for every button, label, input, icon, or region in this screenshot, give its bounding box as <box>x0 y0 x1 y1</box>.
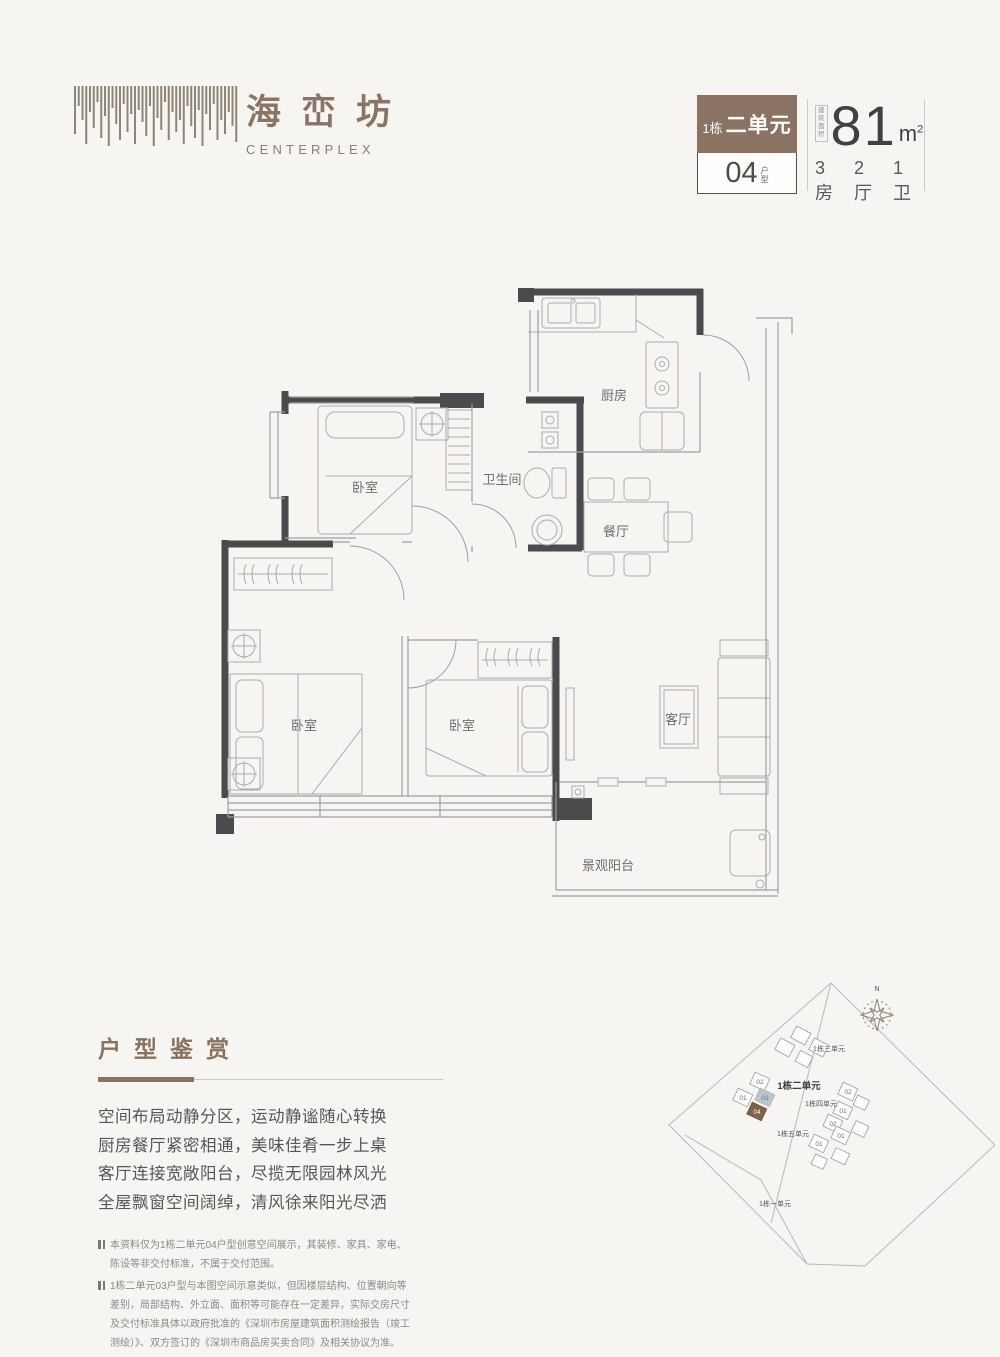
feature-line: 全屋飘窗空间阔绰，清风徐来阳光尽洒 <box>98 1189 448 1218</box>
bedroom2-furniture <box>228 558 362 794</box>
header-divider <box>807 99 808 191</box>
baths-count: 1卫 <box>893 158 921 205</box>
room-label-kitchen: 厨房 <box>601 388 627 403</box>
unit-badge: 1栋 二单元 04 户 型 <box>697 95 797 194</box>
dining-furniture <box>584 478 692 576</box>
site-plan-svg: 1栋三单元 1栋二单元 1栋四单元 1栋五单元 1栋一单元 02 01 03 0… <box>665 975 995 1270</box>
note-marker-icon <box>98 1236 110 1274</box>
site-plan: 1栋三单元 1栋二单元 1栋四单元 1栋五单元 1栋一单元 02 01 03 0… <box>665 975 995 1275</box>
unit-box: 02 <box>829 1121 837 1128</box>
floorplan-poster-page: 海 峦 坊 CENTERPLEX 1栋 二单元 04 户 型 建筑 面积 <box>0 0 1000 1357</box>
feature-list: 空间布局动静分区，运动静谧随心转换 厨房餐厅紧密相通，美味佳肴一步上桌 客厅连接… <box>98 1103 448 1217</box>
compass-icon: N <box>861 986 893 1031</box>
site-buildings <box>733 1026 870 1169</box>
room-label-bedroom1: 卧室 <box>352 480 378 495</box>
halls-count: 2厅 <box>854 158 882 205</box>
feature-line: 空间布局动静分区，运动静谧随心转换 <box>98 1103 448 1132</box>
room-label-balcony: 景观阳台 <box>582 858 634 873</box>
unit-badge-top: 1栋 二单元 <box>697 95 797 153</box>
logo-en-name: CENTERPLEX <box>246 142 386 157</box>
unit-box: 01 <box>839 1108 847 1115</box>
floor-plan: 厨房 卫生间 餐厅 卧室 卧室 卧室 客厅 景观阳台 <box>200 280 820 945</box>
room-label-dining: 餐厅 <box>603 524 629 539</box>
area-block: 建筑 面积 81 m2 3房 2厅 1卫 <box>815 100 921 205</box>
rooms-count: 3房 <box>815 158 843 205</box>
note-marker-icon <box>98 1277 110 1353</box>
unit-box-01: 01 <box>739 1095 747 1102</box>
walls <box>216 288 703 834</box>
floor-plan-svg: 厨房 卫生间 餐厅 卧室 卧室 卧室 客厅 景观阳台 <box>200 280 820 940</box>
disclaimer-text: 本资料仅为1栋二单元04户型创意空间展示，其装修、家具、家电、陈设等非交付标准，… <box>110 1236 416 1274</box>
header-divider <box>924 99 925 191</box>
unit-box: 01 <box>837 1133 845 1140</box>
door-arcs <box>350 335 749 688</box>
logo-cn: 海 峦 坊 <box>246 84 386 135</box>
feature-line: 客厅连接宽敞阳台，尽揽无限园林风光 <box>98 1160 448 1189</box>
unit-box-03-highlight: 03 <box>761 1095 769 1102</box>
block-number: 1栋 <box>702 118 722 137</box>
type-suffix: 户 型 <box>761 166 769 184</box>
room-label-bedroom3: 卧室 <box>449 718 475 733</box>
type-number: 04 <box>725 157 757 190</box>
building-label-5: 1栋五单元 <box>777 1129 809 1138</box>
logo: 海 峦 坊 CENTERPLEX <box>246 84 386 157</box>
showcase-title: 户型鉴赏 <box>98 1030 448 1064</box>
unit-box: 02 <box>844 1089 852 1096</box>
type-badge: 04 户 型 <box>697 153 797 194</box>
building-label-1: 1栋一单元 <box>759 1199 791 1208</box>
logo-char-2: 峦 <box>301 84 336 135</box>
room-label-bedroom2: 卧室 <box>291 718 317 733</box>
building-label-4: 1栋四单元 <box>805 1099 837 1108</box>
area-prefix: 建筑 面积 <box>815 105 828 142</box>
unit-box: 01 <box>815 1141 823 1148</box>
area-value: 81 <box>831 100 897 152</box>
showcase-rule <box>98 1077 448 1082</box>
disclaimer-section: 本资料仅为1栋二单元04户型创意空间展示，其装修、家具、家电、陈设等非交付标准，… <box>98 1236 416 1356</box>
logo-barcode-decoration <box>74 86 242 150</box>
room-count: 3房 2厅 1卫 <box>815 158 921 205</box>
unit-name: 二单元 <box>726 109 792 139</box>
disclaimer-item: 本资料仅为1栋二单元04户型创意空间展示，其装修、家具、家电、陈设等非交付标准，… <box>98 1236 416 1274</box>
showcase-section: 户型鉴赏 空间布局动静分区，运动静谧随心转换 厨房餐厅紧密相通，美味佳肴一步上桌… <box>98 1030 448 1217</box>
room-labels: 厨房 卫生间 餐厅 卧室 卧室 卧室 客厅 景观阳台 <box>291 388 691 873</box>
kitchen-fixtures <box>528 294 684 450</box>
logo-char-3: 坊 <box>356 84 391 135</box>
building-label-2-highlight: 1栋二单元 <box>777 1080 821 1092</box>
bedroom3-furniture <box>426 642 552 776</box>
disclaimer-text: 1栋二单元03户型与本图空间示意类似，但因楼层结构、位置朝向等差别，局部结构、外… <box>110 1277 416 1353</box>
area-unit: m2 <box>899 116 923 151</box>
unit-box-02: 02 <box>756 1079 764 1086</box>
area-row: 建筑 面积 81 m2 <box>815 100 921 152</box>
bedroom1-furniture <box>318 406 448 534</box>
room-label-bathroom: 卫生间 <box>482 472 521 487</box>
compass-north-label: N <box>874 986 879 993</box>
unit-box-04-highlight: 04 <box>753 1109 761 1116</box>
feature-line: 厨房餐厅紧密相通，美味佳肴一步上桌 <box>98 1132 448 1161</box>
disclaimer-item: 1栋二单元03户型与本图空间示意类似，但因楼层结构、位置朝向等差别，局部结构、外… <box>98 1277 416 1353</box>
building-label-3: 1栋三单元 <box>813 1044 845 1053</box>
logo-char-1: 海 <box>246 84 281 135</box>
room-label-living: 客厅 <box>665 712 691 727</box>
